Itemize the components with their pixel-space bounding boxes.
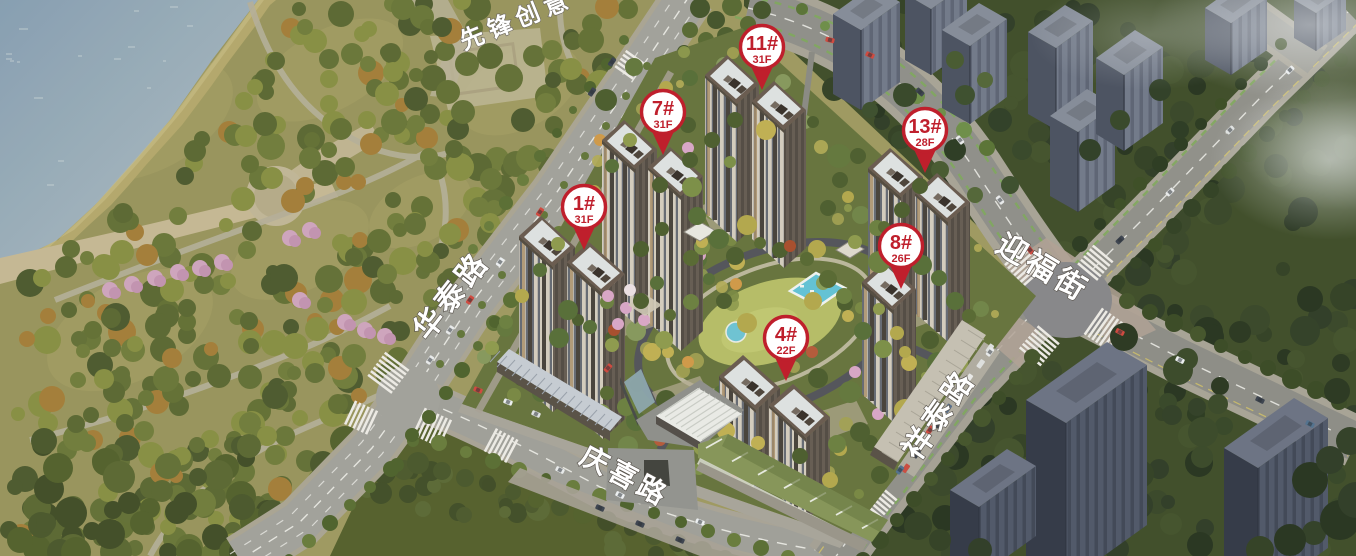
svg-text:7#: 7# xyxy=(652,98,674,120)
svg-text:8#: 8# xyxy=(890,232,912,254)
svg-text:31F: 31F xyxy=(654,119,673,131)
svg-text:31F: 31F xyxy=(575,214,594,226)
svg-text:11#: 11# xyxy=(746,33,778,55)
svg-text:26F: 26F xyxy=(892,253,911,265)
svg-text:28F: 28F xyxy=(916,137,935,149)
svg-text:1#: 1# xyxy=(573,193,595,215)
svg-text:13#: 13# xyxy=(908,116,941,138)
svg-text:22F: 22F xyxy=(777,345,796,357)
svg-text:4#: 4# xyxy=(775,324,797,346)
svg-text:31F: 31F xyxy=(753,54,772,66)
